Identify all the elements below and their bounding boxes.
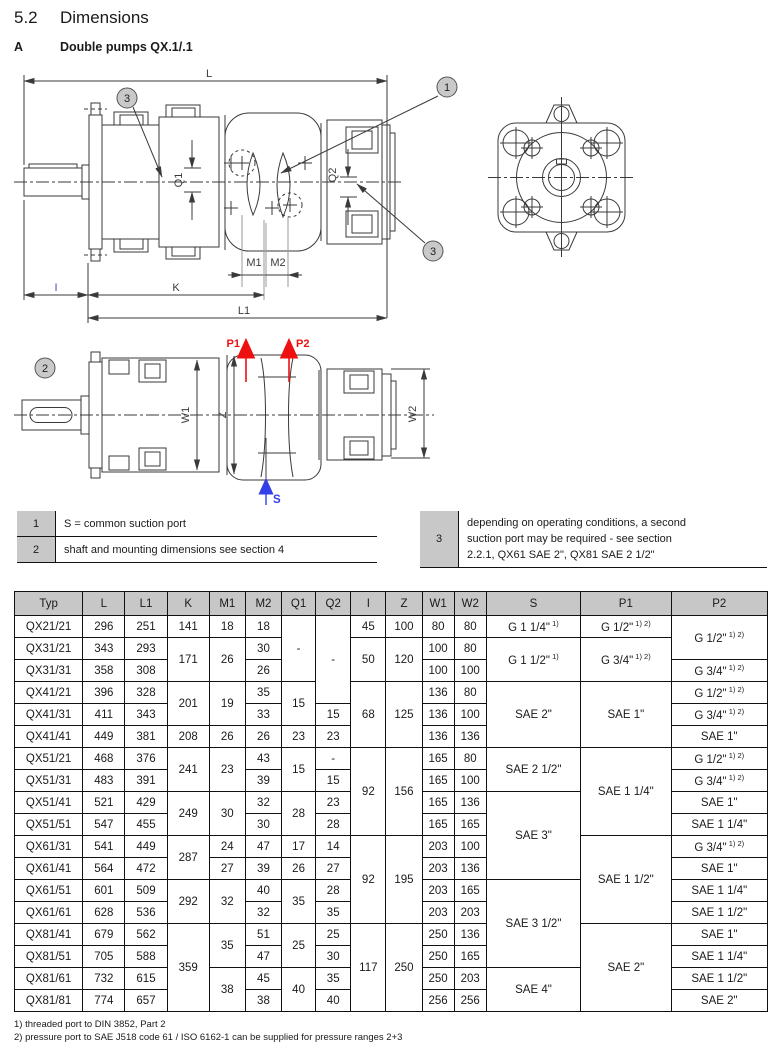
dimension-cell: 203	[422, 880, 454, 902]
footnote-1: 1) threaded port to DIN 3852, Part 2	[14, 1018, 402, 1031]
column-header-q1: Q1	[282, 592, 316, 616]
port-label-S: S	[273, 494, 281, 506]
dimension-cell: 47	[245, 946, 281, 968]
dimension-cell: 30	[316, 946, 351, 968]
dimension-cell: 564	[83, 858, 125, 880]
note-row-2: 2 shaft and mounting dimensions see sect…	[17, 537, 377, 563]
note-row-1: 1 S = common suction port	[17, 511, 377, 537]
dimension-cell: 14	[316, 836, 351, 858]
dimension-cell: 391	[125, 770, 167, 792]
callout-3b-number: 3	[430, 246, 436, 258]
note-number: 1	[17, 511, 55, 536]
dimension-cell: 250	[422, 924, 454, 946]
dimension-cell: 203	[454, 902, 486, 924]
dimension-cell: 292	[167, 880, 209, 924]
dimension-cell: 117	[351, 924, 386, 1012]
note-text-line: depending on operating conditions, a sec…	[467, 515, 759, 531]
dim-label-L: L	[206, 68, 212, 80]
dimension-cell: 165	[422, 792, 454, 814]
column-header-m2: M2	[245, 592, 281, 616]
dimension-cell: G 1 1/2" 1)	[486, 638, 580, 682]
column-header-p2: P2	[671, 592, 767, 616]
dimension-cell: 28	[316, 880, 351, 902]
dimension-cell: SAE 1 1/4"	[581, 748, 671, 836]
variant-title: Double pumps QX.1/.1	[60, 40, 193, 54]
pump-type-cell: QX61/51	[15, 880, 83, 902]
dimension-cell: 68	[351, 682, 386, 748]
dimension-cell: 92	[351, 748, 386, 836]
dimension-cell: SAE 1 1/4"	[671, 946, 767, 968]
dimension-cell: 343	[83, 638, 125, 660]
dimension-cell: 165	[454, 946, 486, 968]
dimension-cell: SAE 1 1/4"	[671, 814, 767, 836]
dimension-cell: 47	[245, 836, 281, 858]
dimension-cell: 80	[422, 616, 454, 638]
dimension-cell: -	[316, 748, 351, 770]
dimension-cell: 165	[454, 814, 486, 836]
dimension-cell: SAE 1 1/2"	[671, 968, 767, 990]
dimension-cell: 26	[282, 858, 316, 880]
dimension-cell: SAE 4"	[486, 968, 580, 1012]
table-row: QX41/213963282011935156812513680SAE 2"SA…	[15, 682, 768, 704]
dimension-cell: 774	[83, 990, 125, 1012]
dimension-cell: 251	[125, 616, 167, 638]
note-text: S = common suction port	[55, 511, 377, 536]
dimension-cell: 521	[83, 792, 125, 814]
dimension-cell: 249	[167, 792, 209, 836]
dimension-cell: 141	[167, 616, 209, 638]
notes-left: 1 S = common suction port 2 shaft and mo…	[17, 511, 377, 563]
dim-label-K: K	[172, 282, 180, 294]
dimension-cell: 35	[282, 880, 316, 924]
port-label-P1: P1	[227, 338, 240, 350]
dimension-cell: G 1/2" 1) 2)	[581, 616, 671, 638]
table-row: QX81/4167956235935512525117250250136SAE …	[15, 924, 768, 946]
datasheet-page: 5.2Dimensions ADouble pumps QX.1/.1	[0, 0, 769, 1062]
dimension-cell: 100	[386, 616, 422, 638]
dimension-cell: 241	[167, 748, 209, 792]
dim-label-M2: M2	[270, 257, 285, 269]
dimension-cell: 30	[245, 638, 281, 660]
dimension-cell: 39	[245, 770, 281, 792]
dimension-cell: 43	[245, 748, 281, 770]
dimension-cell: 18	[245, 616, 281, 638]
dimension-cell: 165	[422, 770, 454, 792]
dimension-cell: 32	[245, 792, 281, 814]
dimension-cell: 35	[316, 968, 351, 990]
dimension-cell: 24	[209, 836, 245, 858]
dimension-cell: 136	[454, 924, 486, 946]
side-view-outline	[14, 75, 438, 323]
dimension-cell: 25	[316, 924, 351, 946]
dimension-cell: 381	[125, 726, 167, 748]
dimension-cell: 26	[209, 638, 245, 682]
pump-type-cell: QX31/31	[15, 660, 83, 682]
dimension-cell: G 3/4" 1) 2)	[671, 660, 767, 682]
pump-type-cell: QX61/41	[15, 858, 83, 880]
dimension-cell: 628	[83, 902, 125, 924]
dim-label-M1: M1	[246, 257, 261, 269]
dimension-cell: 100	[454, 660, 486, 682]
dimension-cell: G 1 1/4" 1)	[486, 616, 580, 638]
dimension-cell: 547	[83, 814, 125, 836]
dimension-cell: 80	[454, 682, 486, 704]
pump-type-cell: QX21/21	[15, 616, 83, 638]
dimension-cell: 26	[209, 726, 245, 748]
pump-type-cell: QX51/31	[15, 770, 83, 792]
dimension-cell: 23	[209, 748, 245, 792]
pump-type-cell: QX51/41	[15, 792, 83, 814]
section-title: Dimensions	[60, 8, 149, 27]
notes-right: 3 depending on operating conditions, a s…	[420, 511, 767, 568]
pump-type-cell: QX51/21	[15, 748, 83, 770]
dimension-cell: 256	[422, 990, 454, 1012]
dimension-cell: 23	[316, 726, 351, 748]
table-row: QX31/2134329317126305012010080G 1 1/2" 1…	[15, 638, 768, 660]
dimension-cell: 26	[245, 660, 281, 682]
dimension-cell: 18	[209, 616, 245, 638]
dimension-cell: 40	[245, 880, 281, 902]
note-text-line: suction port may be required - see secti…	[467, 531, 759, 547]
variant-heading: ADouble pumps QX.1/.1	[14, 40, 193, 54]
dimension-cell: SAE 1"	[671, 924, 767, 946]
note-number: 3	[420, 511, 458, 567]
dimension-cell: 32	[209, 880, 245, 924]
note-row-3: 3 depending on operating conditions, a s…	[420, 511, 767, 568]
dimension-cell: 51	[245, 924, 281, 946]
dimension-cell: 343	[125, 704, 167, 726]
dimension-cell: 541	[83, 836, 125, 858]
dimension-cell: 27	[316, 858, 351, 880]
dimension-cell: G 3/4" 1) 2)	[581, 638, 671, 682]
callout-3-number: 3	[124, 93, 130, 105]
dimension-cell: 92	[351, 836, 386, 924]
dimension-cell: 449	[125, 836, 167, 858]
dimension-cell: 45	[245, 968, 281, 990]
dimension-cell: 35	[245, 682, 281, 704]
dimension-cell: 80	[454, 638, 486, 660]
dimension-cell: SAE 1 1/2"	[671, 902, 767, 924]
dimension-cell: G 1/2" 1) 2)	[671, 682, 767, 704]
dimension-cell: 201	[167, 682, 209, 726]
dim-label-Q1: Q1	[173, 173, 185, 188]
dimension-cell: 250	[386, 924, 422, 1012]
dim-label-Q2: Q2	[327, 168, 339, 183]
section-heading: 5.2Dimensions	[14, 8, 149, 28]
dimension-cell: G 3/4" 1) 2)	[671, 836, 767, 858]
dimension-cell: -	[282, 616, 316, 682]
pump-type-cell: QX51/51	[15, 814, 83, 836]
dimension-cell: 509	[125, 880, 167, 902]
dim-label-Z: Z	[217, 411, 229, 418]
column-header-l: L	[83, 592, 125, 616]
dimension-cell: 100	[422, 660, 454, 682]
pump-type-cell: QX81/41	[15, 924, 83, 946]
column-header-k: K	[167, 592, 209, 616]
pump-side-view-drawing: L Q1 Q2 M1 M2 I K L1 3 1 3	[14, 65, 474, 335]
note-number: 2	[17, 537, 55, 562]
dimension-cell: 35	[316, 902, 351, 924]
dimension-cell: 80	[454, 616, 486, 638]
column-header-s: S	[486, 592, 580, 616]
dimension-cell: 203	[422, 902, 454, 924]
dimension-cell: 208	[167, 726, 209, 748]
dimension-cell: 40	[316, 990, 351, 1012]
dimension-cell: -	[316, 616, 351, 704]
dim-label-W1: W1	[180, 407, 192, 424]
dimension-cell: 615	[125, 968, 167, 990]
dimension-cell: G 3/4" 1) 2)	[671, 704, 767, 726]
dimension-cell: 19	[209, 682, 245, 726]
dimension-cell: 120	[386, 638, 422, 682]
dimension-cell: 455	[125, 814, 167, 836]
dimension-cell: 293	[125, 638, 167, 660]
dimension-cell: SAE 1 1/2"	[581, 836, 671, 924]
pump-type-cell: QX41/31	[15, 704, 83, 726]
dimension-table: TypLL1KM1M2Q1Q2IZW1W2SP1P2 QX21/21296251…	[14, 591, 768, 1012]
dimension-cell: SAE 1 1/4"	[671, 880, 767, 902]
dimension-cell: 40	[282, 968, 316, 1012]
dimension-cell: 562	[125, 924, 167, 946]
dimension-cell: SAE 1"	[671, 858, 767, 880]
dimension-cell: 50	[351, 638, 386, 682]
dimension-cell: 26	[245, 726, 281, 748]
dimension-cell: SAE 1"	[671, 726, 767, 748]
dimension-cell: 358	[83, 660, 125, 682]
dimension-cell: 250	[422, 968, 454, 990]
column-header-l1: L1	[125, 592, 167, 616]
column-header-typ: Typ	[15, 592, 83, 616]
dimension-cell: 483	[83, 770, 125, 792]
dim-label-W2: W2	[407, 406, 419, 423]
column-header-w2: W2	[454, 592, 486, 616]
dimension-cell: 15	[316, 770, 351, 792]
callout-2-number: 2	[42, 363, 48, 375]
pump-type-cell: QX61/31	[15, 836, 83, 858]
dimension-cell: 136	[422, 682, 454, 704]
section-number: 5.2	[14, 8, 60, 28]
dimension-cell: 195	[386, 836, 422, 924]
dimension-cell: SAE 2 1/2"	[486, 748, 580, 792]
dimension-cell: 38	[209, 968, 245, 1012]
dimension-cell: SAE 1"	[671, 792, 767, 814]
column-header-z: Z	[386, 592, 422, 616]
dimension-cell: 25	[282, 924, 316, 968]
dimension-cell: 328	[125, 682, 167, 704]
dimension-cell: G 1/2" 1) 2)	[671, 748, 767, 770]
table-row: QX51/21468376241234315-9215616580SAE 2 1…	[15, 748, 768, 770]
dimension-cell: 23	[316, 792, 351, 814]
dimension-cell: 376	[125, 748, 167, 770]
port-label-P2: P2	[296, 338, 309, 350]
pump-type-cell: QX41/41	[15, 726, 83, 748]
dimension-cell: 296	[83, 616, 125, 638]
dimension-cell: 250	[422, 946, 454, 968]
pump-type-cell: QX41/21	[15, 682, 83, 704]
dimension-cell: 411	[83, 704, 125, 726]
dimension-cell: 203	[454, 968, 486, 990]
note-text: depending on operating conditions, a sec…	[458, 511, 767, 567]
dimension-cell: 17	[282, 836, 316, 858]
dimension-cell: 15	[282, 682, 316, 726]
column-header-q2: Q2	[316, 592, 351, 616]
dimension-cell: 28	[282, 792, 316, 836]
footnote-2: 2) pressure port to SAE J518 code 61 / I…	[14, 1031, 402, 1044]
dimension-cell: 38	[245, 990, 281, 1012]
dimension-cell: 136	[422, 704, 454, 726]
dimension-cell: 100	[422, 638, 454, 660]
dimension-cell: 30	[245, 814, 281, 836]
dimension-cell: SAE 3 1/2"	[486, 880, 580, 968]
dimension-cell: SAE 1"	[581, 682, 671, 748]
dimension-cell: 136	[454, 858, 486, 880]
dimension-cell: 256	[454, 990, 486, 1012]
column-header-m1: M1	[209, 592, 245, 616]
dim-label-L1: L1	[238, 305, 250, 317]
dimension-cell: 33	[245, 704, 281, 726]
note-text-line: 2.2.1, QX61 SAE 2", QX81 SAE 2 1/2"	[467, 547, 759, 563]
dimension-cell: 45	[351, 616, 386, 638]
dimension-cell: 165	[422, 814, 454, 836]
dimension-cell: 429	[125, 792, 167, 814]
pump-end-view-drawing	[480, 85, 655, 265]
column-header-p1: P1	[581, 592, 671, 616]
dimension-cell: 39	[245, 858, 281, 880]
dimension-cell: 30	[209, 792, 245, 836]
dimension-cell: 32	[245, 902, 281, 924]
dimension-cell: 588	[125, 946, 167, 968]
table-header-row: TypLL1KM1M2Q1Q2IZW1W2SP1P2	[15, 592, 768, 616]
dimension-cell: 203	[422, 858, 454, 880]
dimension-cell: 100	[454, 770, 486, 792]
column-header-w1: W1	[422, 592, 454, 616]
footnotes: 1) threaded port to DIN 3852, Part 2 2) …	[14, 1018, 402, 1044]
dimension-cell: 396	[83, 682, 125, 704]
dimension-cell: SAE 2"	[581, 924, 671, 1012]
dimension-cell: 100	[454, 836, 486, 858]
end-view-outline	[488, 97, 635, 257]
pump-type-cell: QX81/81	[15, 990, 83, 1012]
dimension-cell: G 3/4" 1) 2)	[671, 770, 767, 792]
dimension-cell: 679	[83, 924, 125, 946]
dimension-cell: 27	[209, 858, 245, 880]
pump-type-cell: QX61/61	[15, 902, 83, 924]
callout-1-number: 1	[444, 82, 450, 94]
dimension-cell: 165	[454, 880, 486, 902]
table-row: QX61/315414492872447171492195203100SAE 1…	[15, 836, 768, 858]
dimension-cell: SAE 3"	[486, 792, 580, 880]
dimension-cell: 136	[422, 726, 454, 748]
pump-type-cell: QX81/51	[15, 946, 83, 968]
dimension-cell: 601	[83, 880, 125, 902]
dimension-cell: 705	[83, 946, 125, 968]
dimension-cell: 136	[454, 726, 486, 748]
note-text: shaft and mounting dimensions see sectio…	[55, 537, 377, 562]
dim-label-I: I	[54, 282, 57, 294]
dimension-cell: 203	[422, 836, 454, 858]
dimension-cell: 15	[282, 748, 316, 792]
dimension-cell: SAE 2"	[486, 682, 580, 748]
dimension-cell: 125	[386, 682, 422, 748]
dimension-cell: 359	[167, 924, 209, 1012]
dimension-cell: 732	[83, 968, 125, 990]
dimension-cell: 468	[83, 748, 125, 770]
dimension-cell: 23	[282, 726, 316, 748]
dimension-cell: 472	[125, 858, 167, 880]
dimension-cell: 80	[454, 748, 486, 770]
dimension-cell: SAE 2"	[671, 990, 767, 1012]
dimension-cell: 449	[83, 726, 125, 748]
dimension-cell: 165	[422, 748, 454, 770]
dimension-cell: 15	[316, 704, 351, 726]
dimension-cell: G 1/2" 1) 2)	[671, 616, 767, 660]
dimension-cell: 657	[125, 990, 167, 1012]
table-row: QX21/212962511411818--451008080G 1 1/4" …	[15, 616, 768, 638]
dimension-cell: 28	[316, 814, 351, 836]
pump-type-cell: QX31/21	[15, 638, 83, 660]
dimension-cell: 308	[125, 660, 167, 682]
dimension-cell: 156	[386, 748, 422, 836]
column-header-i: I	[351, 592, 386, 616]
pump-type-cell: QX81/61	[15, 968, 83, 990]
dimension-cell: 100	[454, 704, 486, 726]
dimension-cell: 287	[167, 836, 209, 880]
variant-letter: A	[14, 40, 60, 54]
dimension-cell: 536	[125, 902, 167, 924]
pump-top-view-drawing: P1 P2 S W1 Z W2 2	[14, 330, 474, 510]
dimension-cell: 35	[209, 924, 245, 968]
dimension-cell: 136	[454, 792, 486, 814]
dimension-cell: 171	[167, 638, 209, 682]
